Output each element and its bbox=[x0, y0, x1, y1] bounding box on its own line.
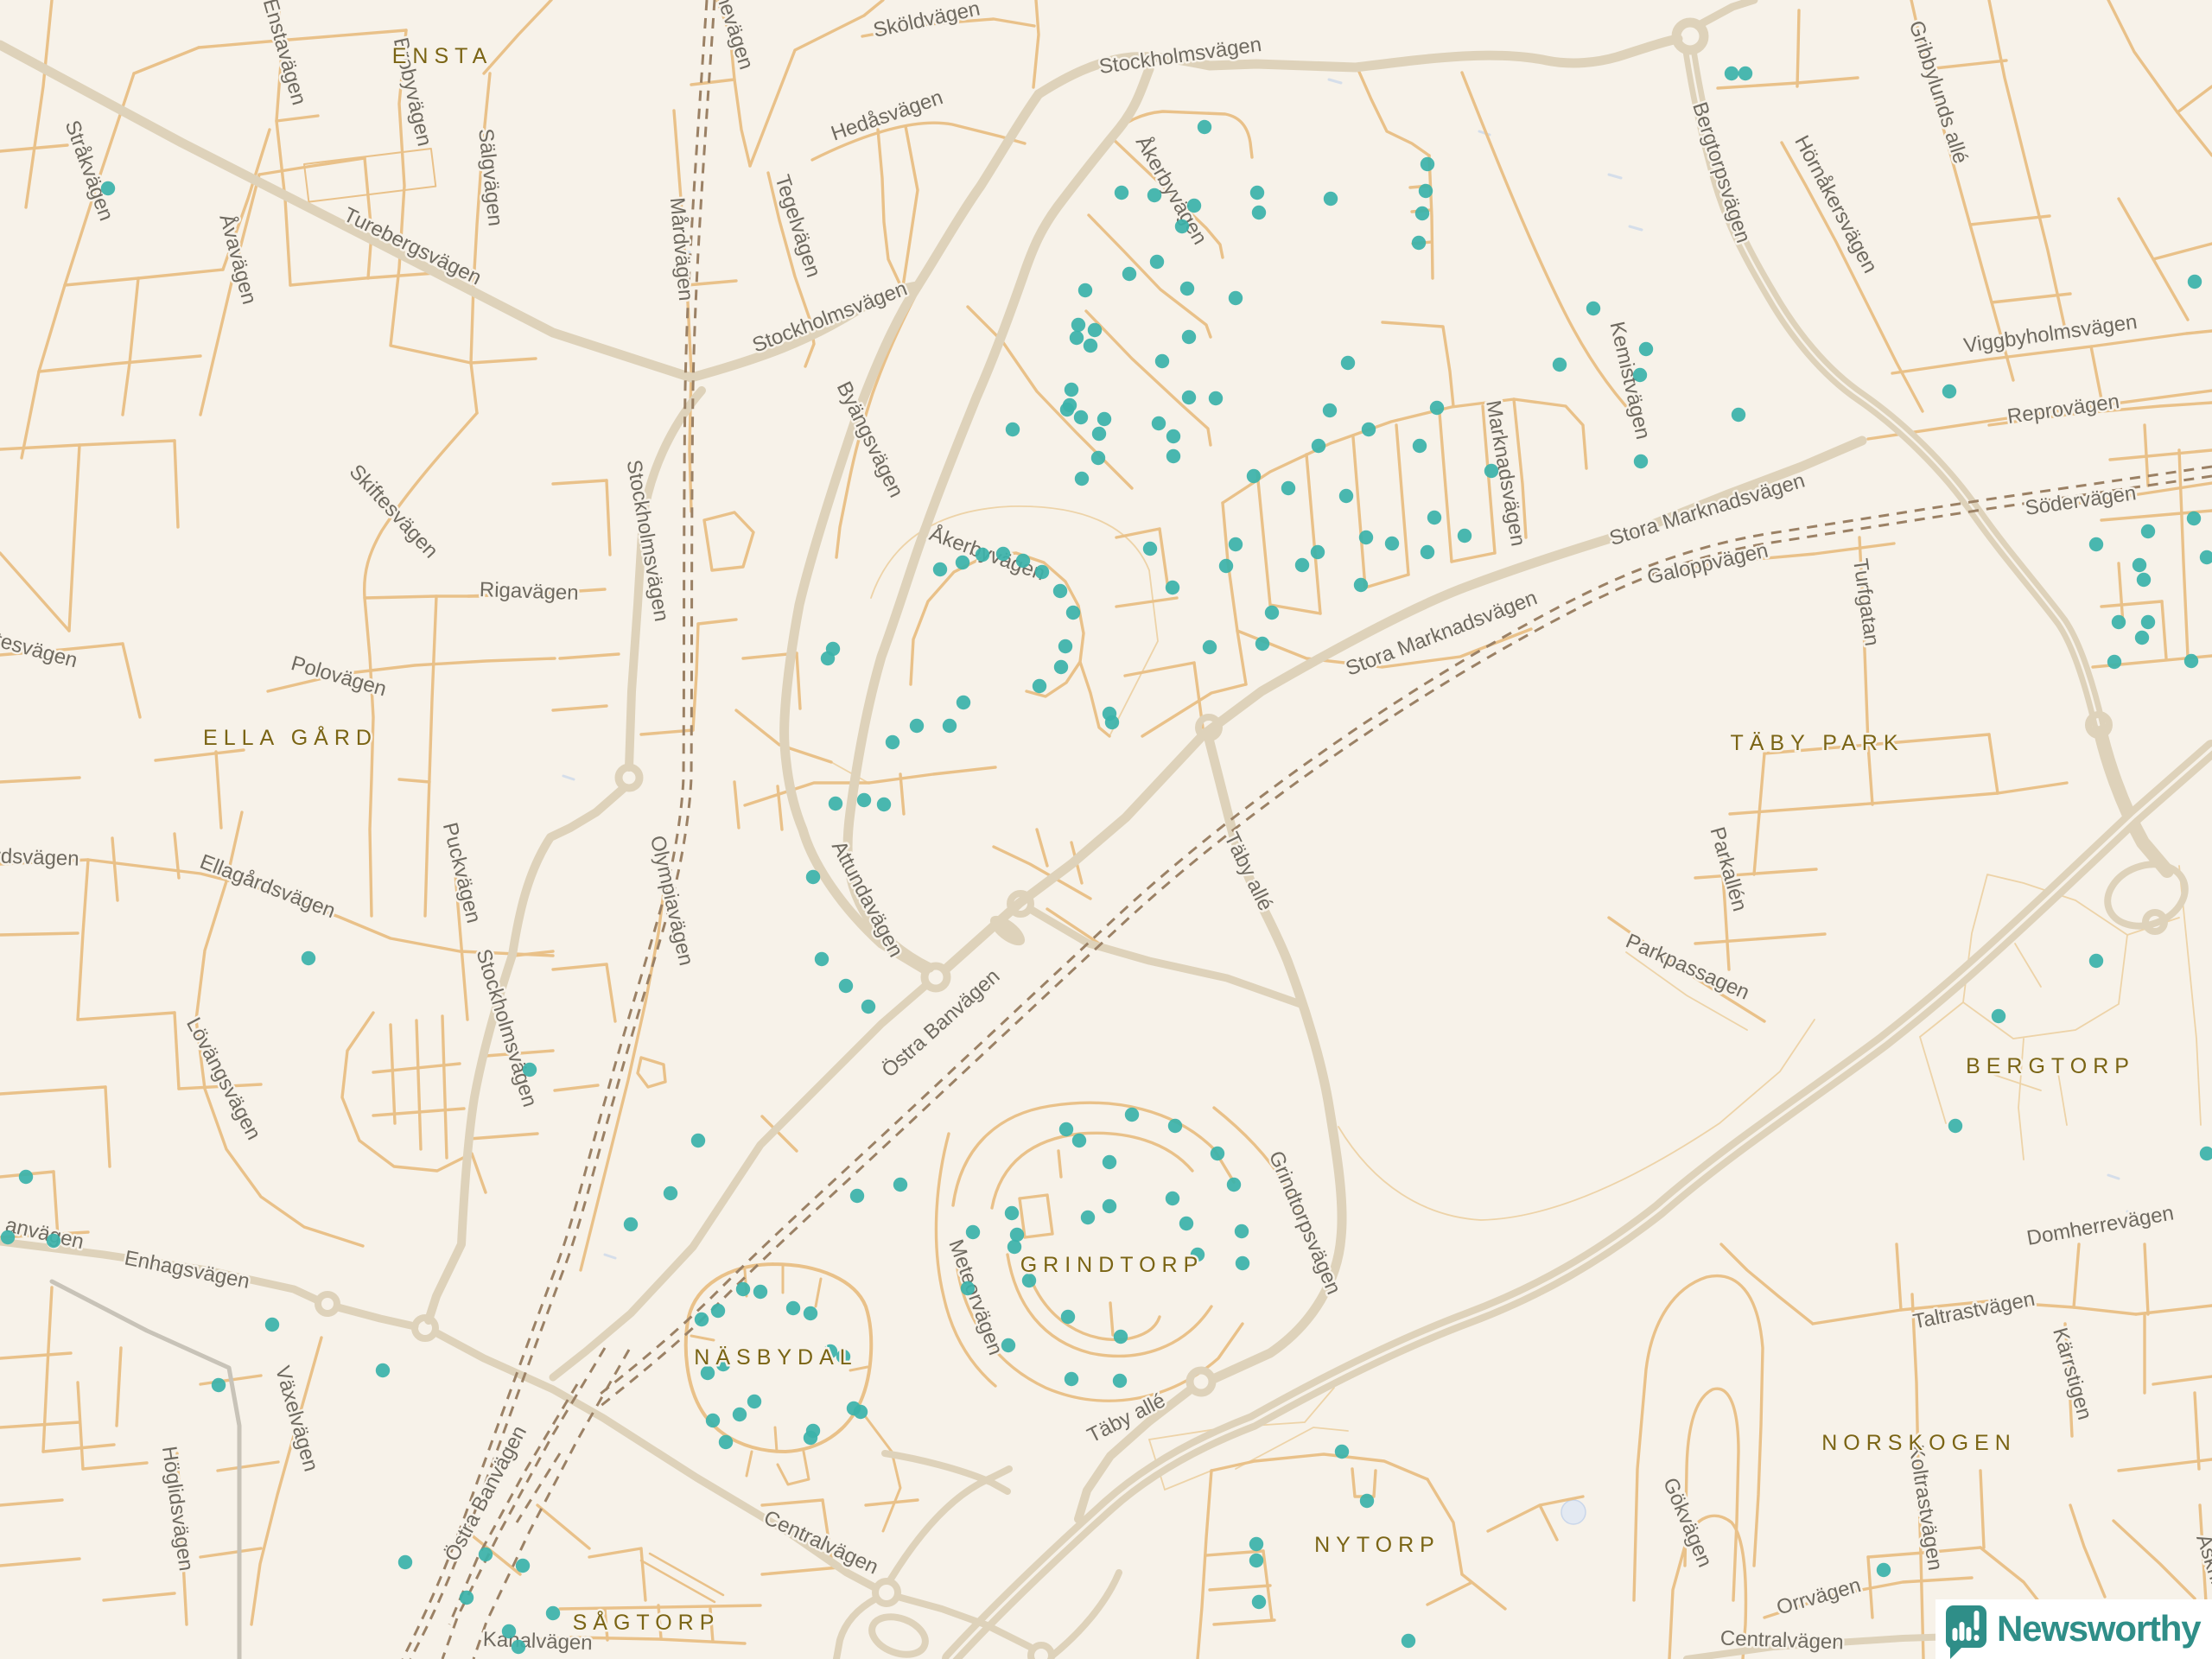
svg-text:NORSKOGEN: NORSKOGEN bbox=[1821, 1431, 2017, 1455]
svg-text:Rigavägen: Rigavägen bbox=[479, 578, 579, 605]
svg-text:ELLA GÅRD: ELLA GÅRD bbox=[203, 724, 378, 750]
svg-text:ENSTA: ENSTA bbox=[392, 44, 493, 68]
svg-text:BERGTORP: BERGTORP bbox=[1966, 1054, 2135, 1078]
svg-text:GRINDTORP: GRINDTORP bbox=[1020, 1253, 1205, 1277]
svg-text:TÄBY PARK: TÄBY PARK bbox=[1730, 731, 1904, 755]
svg-text:Centralvägen: Centralvägen bbox=[1719, 1627, 1844, 1655]
svg-text:rdsvägen: rdsvägen bbox=[0, 844, 79, 870]
svg-text:SÅGTORP: SÅGTORP bbox=[573, 1609, 721, 1635]
svg-text:Newsworthy: Newsworthy bbox=[1997, 1608, 2202, 1649]
svg-text:NYTORP: NYTORP bbox=[1314, 1533, 1440, 1557]
svg-text:NÄSBYDAL: NÄSBYDAL bbox=[694, 1345, 857, 1370]
